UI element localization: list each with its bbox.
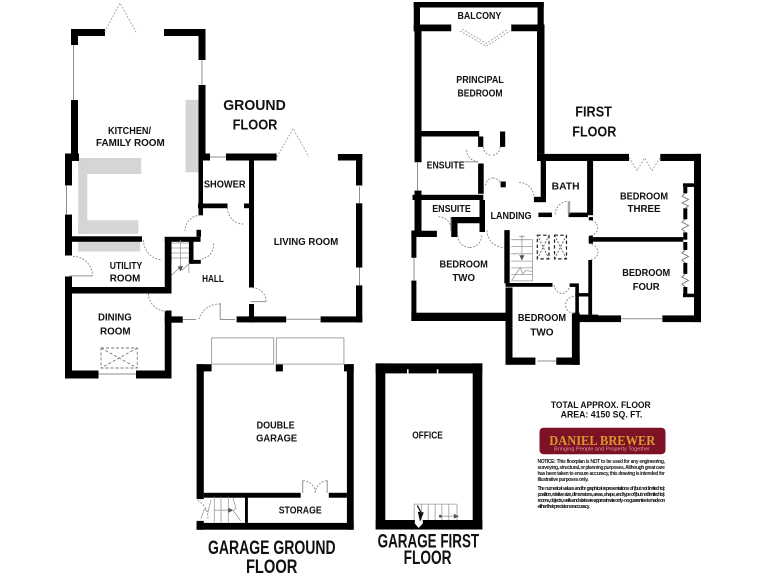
svg-text:FLOOR: FLOOR: [246, 557, 298, 576]
svg-text:ENSUITE: ENSUITE: [427, 159, 465, 171]
svg-text:PRINCIPAL: PRINCIPAL: [456, 74, 504, 86]
svg-text:LIVING ROOM: LIVING ROOM: [274, 236, 339, 248]
svg-text:KITCHEN/: KITCHEN/: [108, 125, 151, 137]
svg-text:LANDING: LANDING: [490, 210, 531, 222]
svg-text:GROUND: GROUND: [223, 97, 286, 114]
svg-text:TWO: TWO: [452, 272, 475, 284]
svg-text:FAMILY ROOM: FAMILY ROOM: [96, 137, 165, 149]
svg-text:OFFICE: OFFICE: [412, 430, 443, 442]
svg-text:ROOM: ROOM: [100, 325, 131, 337]
svg-text:SHOWER: SHOWER: [204, 179, 246, 191]
svg-text:ROOM: ROOM: [110, 273, 141, 285]
svg-text:BEDROOM: BEDROOM: [440, 258, 489, 270]
svg-text:BEDROOM: BEDROOM: [622, 267, 670, 279]
svg-text:STORAGE: STORAGE: [279, 505, 322, 517]
svg-text:THREE: THREE: [628, 203, 661, 215]
svg-text:ENSUITE: ENSUITE: [432, 203, 471, 215]
svg-text:BEDROOM: BEDROOM: [620, 191, 668, 203]
svg-text:BATH: BATH: [552, 181, 580, 193]
svg-text:FIRST: FIRST: [575, 104, 612, 121]
svg-text:UTILITY: UTILITY: [110, 260, 143, 272]
svg-text:FLOOR: FLOOR: [233, 117, 278, 134]
svg-text:BEDROOM: BEDROOM: [458, 87, 503, 99]
svg-text:AREA: 4150 SQ. FT.: AREA: 4150 SQ. FT.: [561, 410, 643, 421]
svg-text:Bringing People and Property T: Bringing People and Property Together: [554, 447, 650, 453]
svg-text:DOUBLE: DOUBLE: [257, 420, 295, 432]
svg-text:BALCONY: BALCONY: [458, 10, 502, 22]
svg-text:DINING: DINING: [98, 312, 132, 324]
svg-text:FLOOR: FLOOR: [572, 124, 616, 141]
svg-text:BEDROOM: BEDROOM: [518, 312, 566, 324]
svg-text:FLOOR: FLOOR: [404, 548, 452, 569]
svg-text:GARAGE GROUND: GARAGE GROUND: [208, 538, 336, 559]
svg-text:FOUR: FOUR: [633, 281, 660, 293]
svg-text:TWO: TWO: [530, 326, 553, 338]
svg-text:HALL: HALL: [202, 273, 224, 285]
svg-text:GARAGE: GARAGE: [256, 433, 297, 445]
